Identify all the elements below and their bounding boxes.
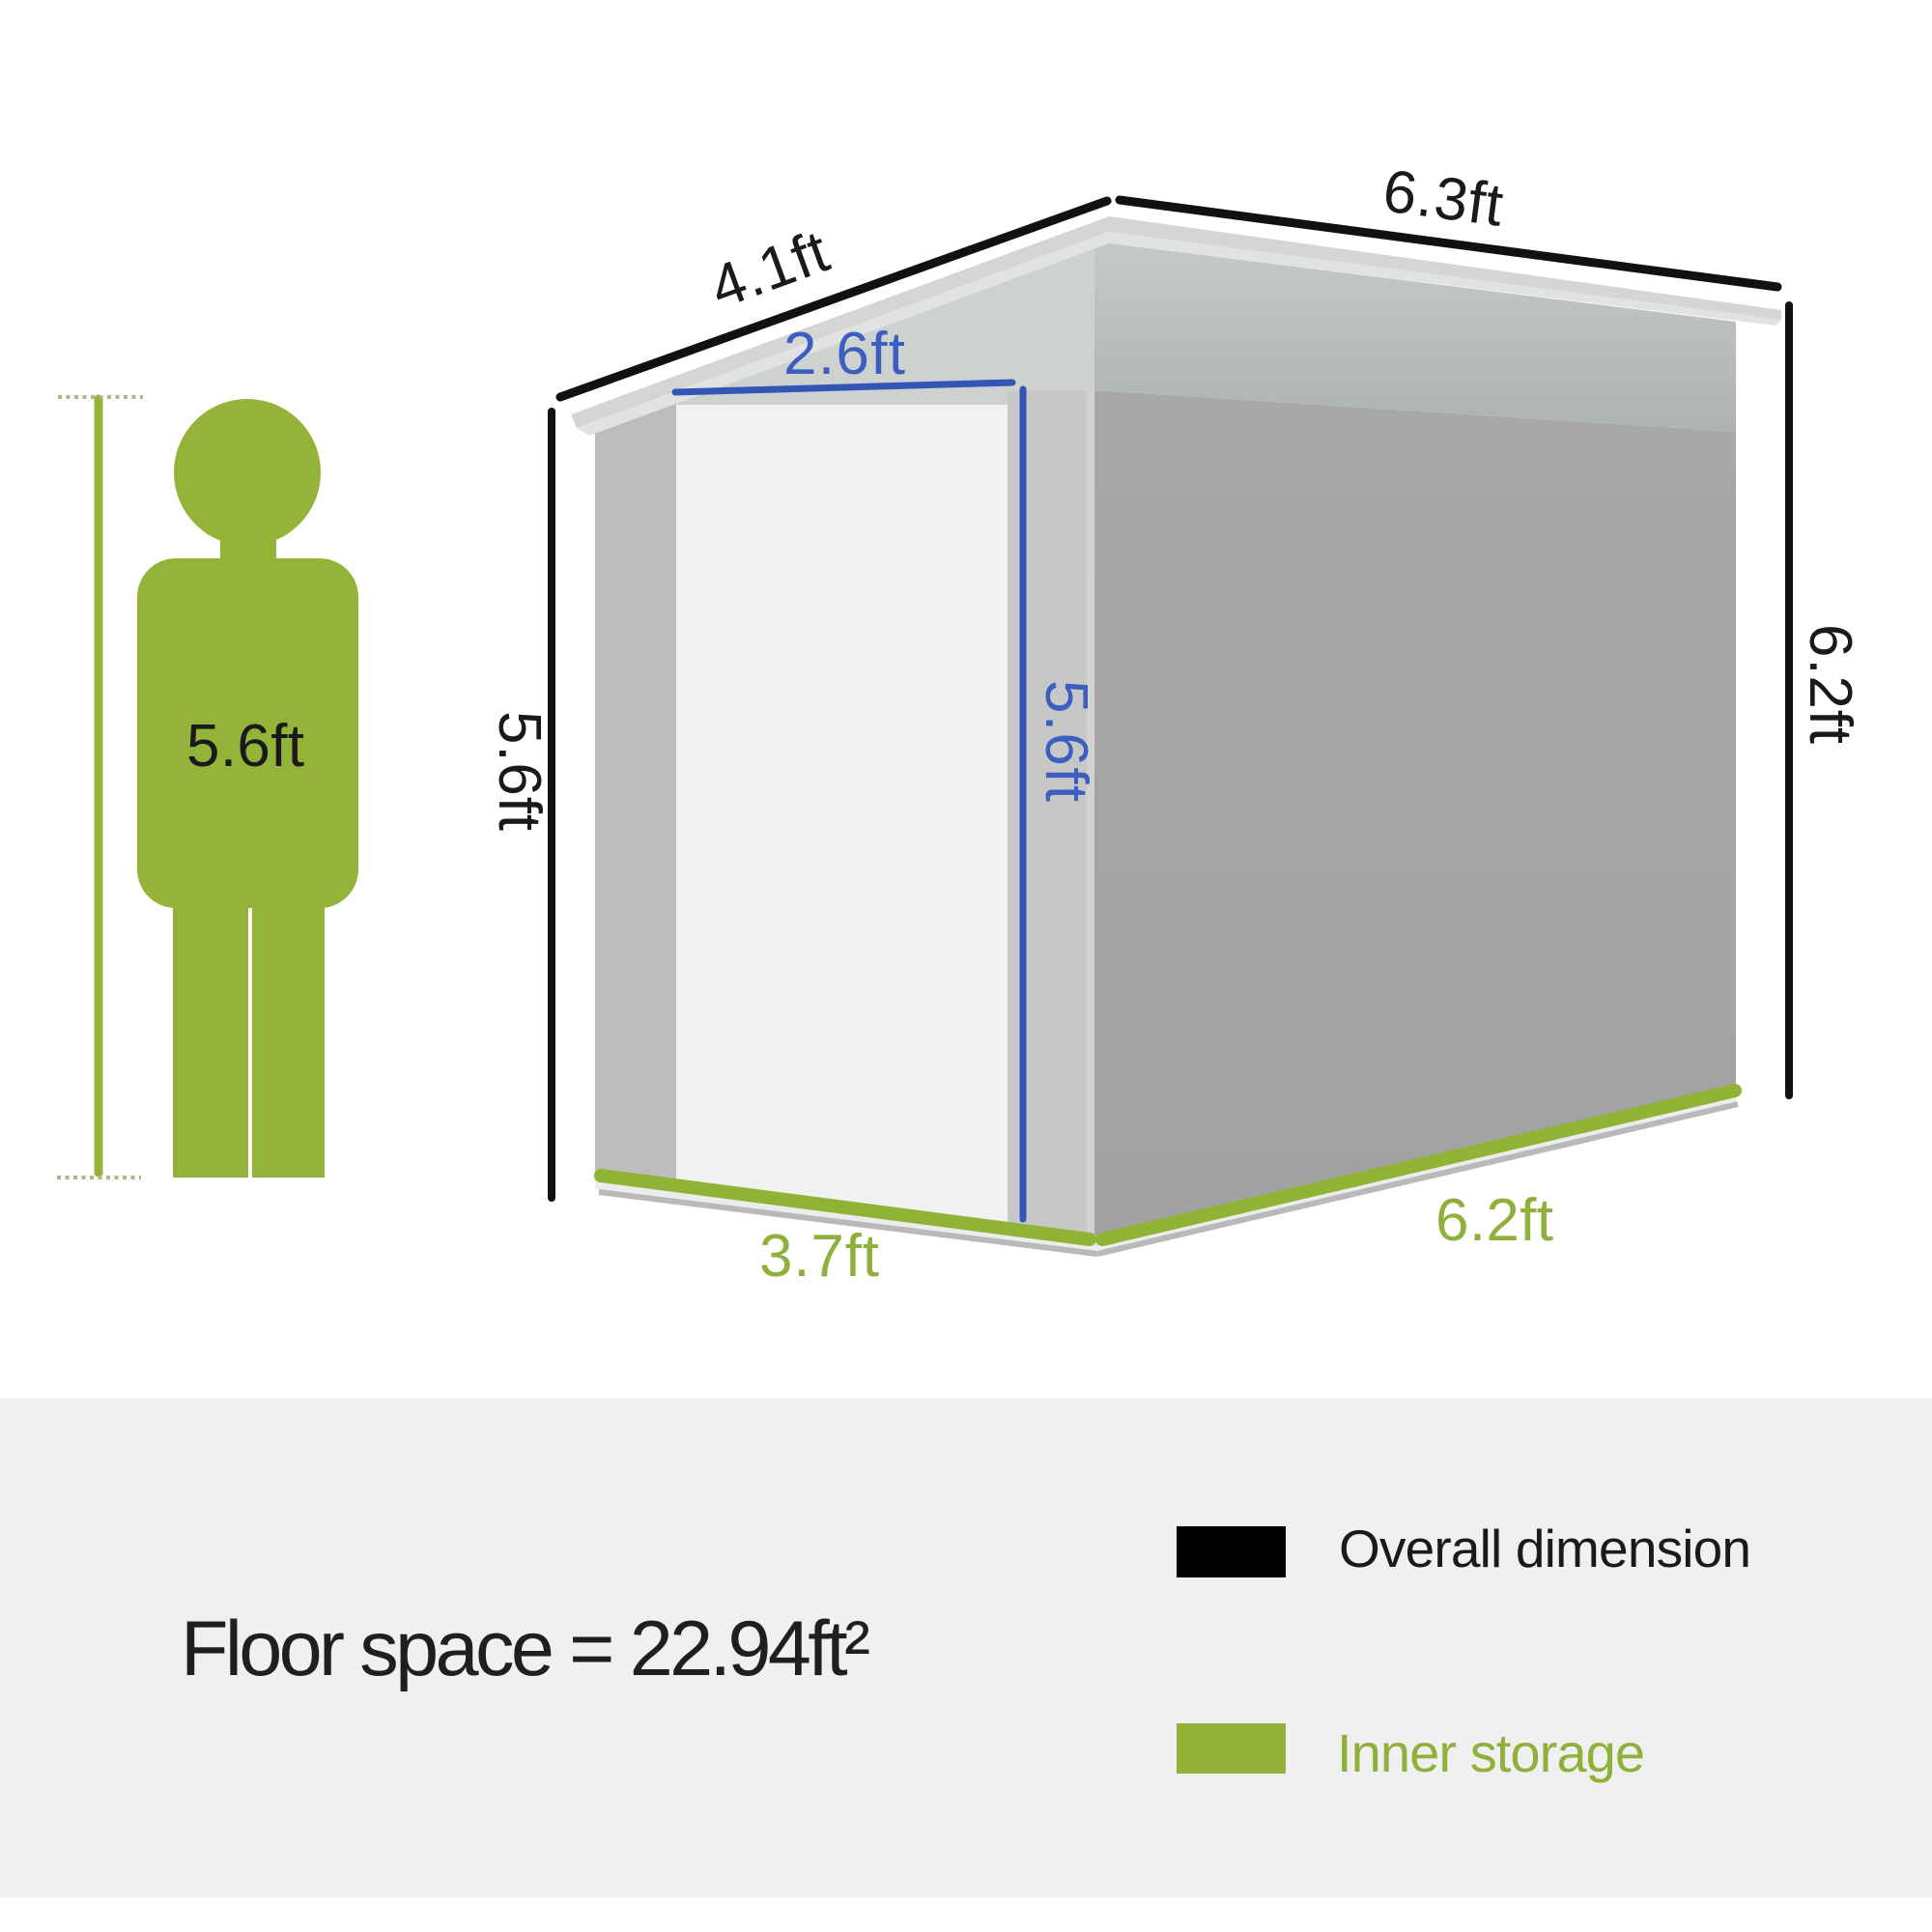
svg-text:5.6ft: 5.6ft bbox=[1033, 680, 1099, 802]
svg-text:5.6ft: 5.6ft bbox=[186, 713, 304, 780]
svg-text:5.6ft: 5.6ft bbox=[486, 711, 553, 831]
svg-text:6.3ft: 6.3ft bbox=[1379, 157, 1507, 240]
svg-text:6.2ft: 6.2ft bbox=[1797, 624, 1863, 744]
svg-text:Overall dimension: Overall dimension bbox=[1339, 1519, 1751, 1578]
svg-text:Inner storage: Inner storage bbox=[1337, 1722, 1645, 1783]
svg-text:6.2ft: 6.2ft bbox=[1435, 1187, 1553, 1254]
svg-text:2.6ft: 2.6ft bbox=[783, 321, 905, 387]
svg-text:3.7ft: 3.7ft bbox=[759, 1223, 879, 1290]
svg-text:Floor space = 22.94ft²: Floor space = 22.94ft² bbox=[181, 1605, 870, 1692]
